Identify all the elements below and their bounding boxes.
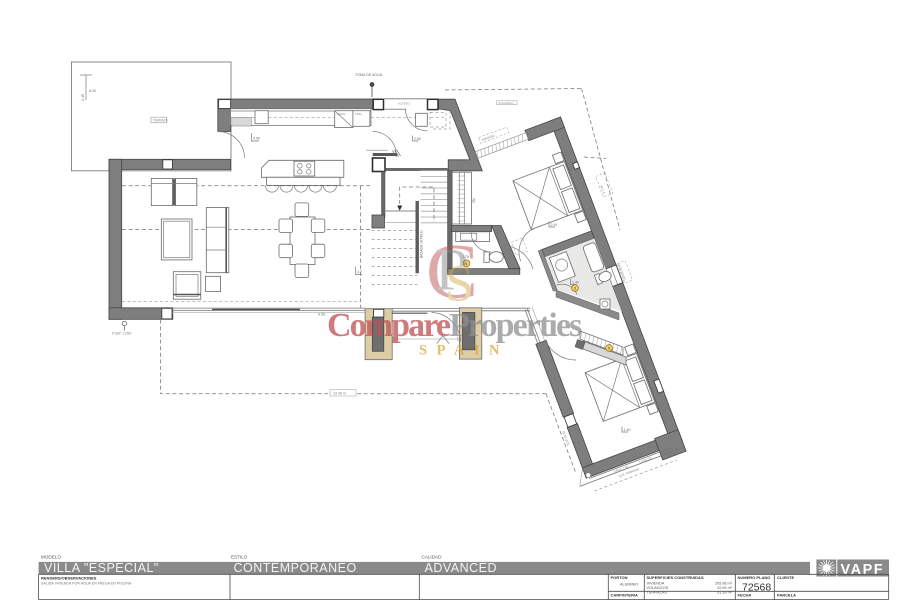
svg-text:CALIDAD: CALIDAD: [422, 555, 443, 560]
svg-text:SPAIN: SPAIN: [419, 343, 509, 359]
svg-text:CLIENTE: CLIENTE: [777, 575, 794, 580]
svg-text:205.98 m²: 205.98 m²: [715, 581, 733, 585]
svg-text:VIVIENDA: VIVIENDA: [647, 581, 665, 585]
svg-text:ESTILO: ESTILO: [231, 555, 248, 560]
svg-text:MODELO: MODELO: [41, 555, 61, 560]
svg-text:SUPERFICIES CONSTRUIDAS: SUPERFICIES CONSTRUIDAS: [647, 575, 704, 580]
svg-text:8.20: 8.20: [89, 89, 96, 93]
svg-text:FRIG.: FRIG.: [355, 112, 363, 116]
svg-text:VOLADIZO: VOLADIZO: [498, 101, 514, 105]
svg-text:ADVANCED: ADVANCED: [425, 561, 498, 575]
svg-text:LAVAV.: LAVAV.: [337, 112, 346, 116]
svg-text:1.40: 1.40: [624, 428, 631, 432]
svg-text:PORTON: PORTON: [611, 575, 628, 580]
svg-text:ALUMINIO: ALUMINIO: [620, 583, 638, 587]
svg-text:FECHA: FECHA: [738, 592, 752, 597]
svg-text:2.91: 2.91: [551, 223, 558, 227]
svg-text:VILLA "ESPECIAL": VILLA "ESPECIAL": [44, 561, 159, 575]
svg-text:VAPF: VAPF: [841, 562, 885, 578]
svg-text:P.SUP. 1.05m: P.SUP. 1.05m: [112, 332, 132, 336]
svg-text:VOLADIZOS: VOLADIZOS: [647, 586, 669, 590]
svg-text:2.60: 2.60: [414, 137, 421, 141]
svg-text:1.40: 1.40: [572, 281, 579, 285]
svg-text:CompareProperties: CompareProperties: [327, 307, 582, 344]
svg-text:CARPINTERIA: CARPINTERIA: [611, 592, 638, 597]
svg-text:TOMA DE AGUA: TOMA DE AGUA: [355, 73, 383, 77]
svg-text:S: S: [445, 256, 474, 313]
svg-text:BAJADA 18 PELD.: BAJADA 18 PELD.: [419, 229, 423, 258]
svg-text:13.40 m: 13.40 m: [333, 392, 346, 396]
svg-text:4.7: 4.7: [357, 270, 362, 274]
svg-text:NUMERO PLANO: NUMERO PLANO: [738, 575, 771, 580]
svg-text:4.50: 4.50: [253, 137, 260, 141]
svg-text:22.05 m²: 22.05 m²: [717, 586, 733, 590]
svg-text:51.39 m²: 51.39 m²: [717, 590, 733, 594]
svg-text:RENDERS/OBSERVACIONES: RENDERS/OBSERVACIONES: [41, 576, 97, 581]
svg-text:TERRAZAS: TERRAZAS: [647, 590, 668, 594]
svg-text:PARCELA: PARCELA: [777, 592, 796, 597]
svg-text:2.45: 2.45: [81, 94, 85, 101]
svg-text:CONTEMPORANEO: CONTEMPORANEO: [234, 561, 357, 575]
svg-text:4.05: 4.05: [318, 313, 325, 317]
svg-text:2M: 2M: [472, 198, 476, 203]
svg-text:TERRAZA: TERRAZA: [153, 119, 169, 123]
svg-text:SALIDA VIVIENDA POR AGUA EN FR: SALIDA VIVIENDA POR AGUA EN FREGA EN PIS…: [41, 582, 132, 586]
svg-text:ACCESO: ACCESO: [398, 102, 411, 106]
